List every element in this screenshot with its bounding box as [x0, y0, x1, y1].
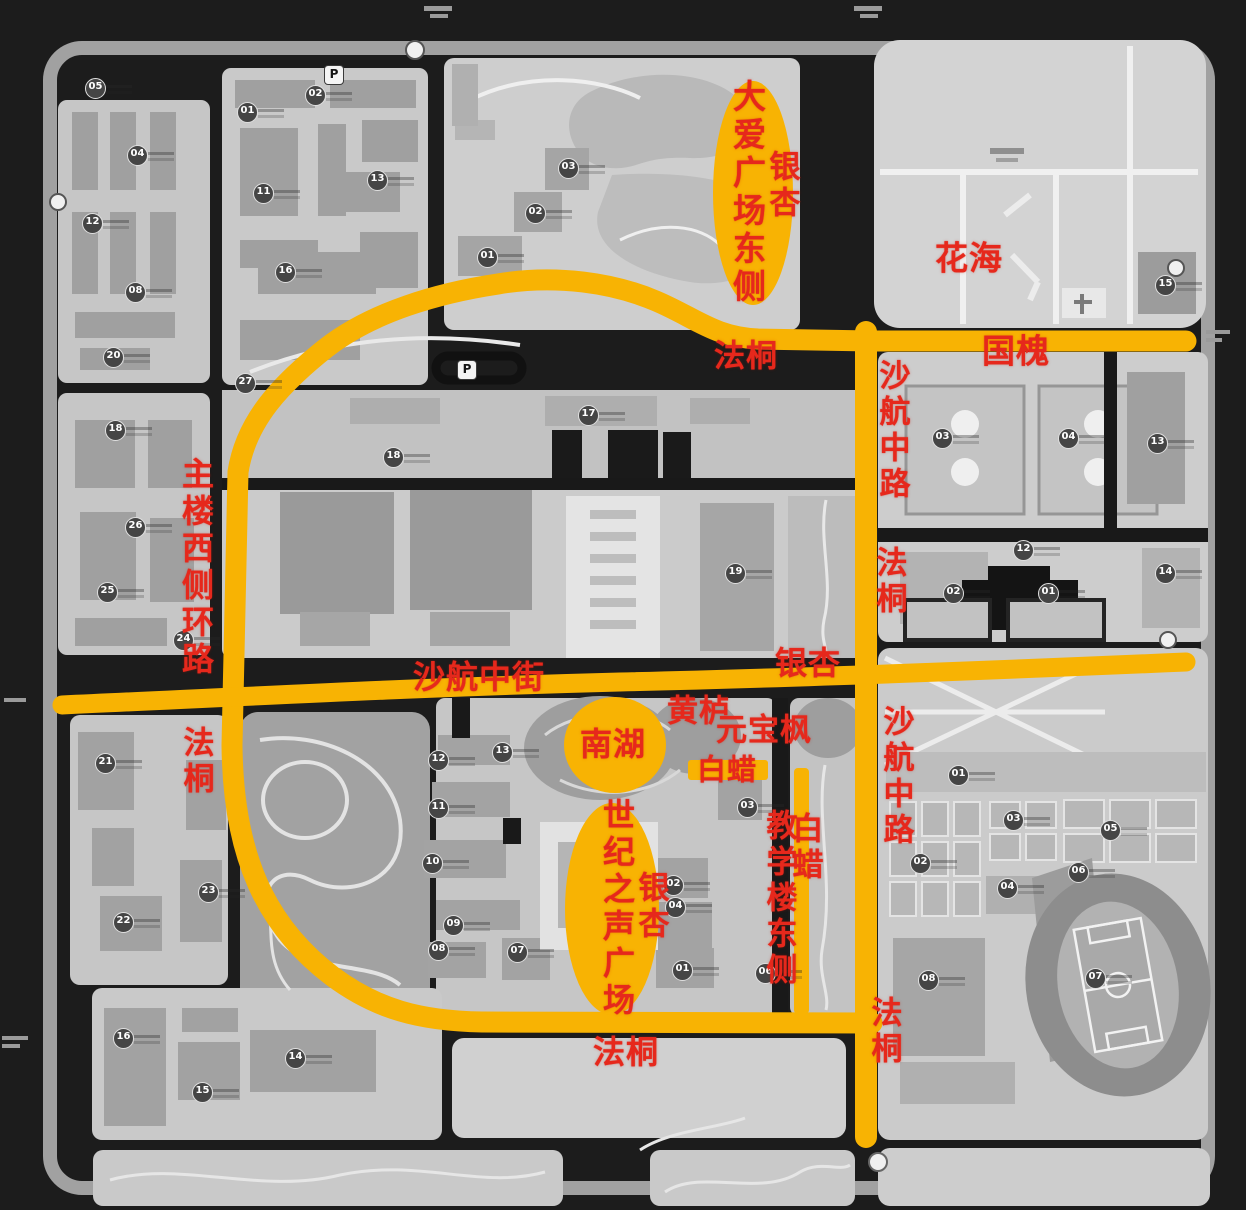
building-marker-02: 02 [910, 853, 931, 874]
building-marker-04: 04 [1058, 428, 1079, 449]
building-marker-02: 02 [943, 583, 964, 604]
building-marker-03: 03 [558, 158, 579, 179]
label-plane-tree-right-lower: 法桐 [868, 996, 899, 1068]
building-marker-20: 20 [103, 347, 124, 368]
building-marker-26: 26 [125, 517, 146, 538]
building-marker-02: 02 [525, 203, 546, 224]
building-marker-12: 12 [428, 750, 449, 771]
building-marker-27: 27 [235, 373, 256, 394]
building-marker-08: 08 [918, 970, 939, 991]
label-plane-tree-top: 法桐 [714, 342, 778, 373]
parking-icon: P [324, 65, 344, 85]
label-ginkgo-plaza: 银杏 [635, 871, 666, 943]
label-ginkgo-middle: 银杏 [775, 647, 841, 679]
building-marker-14: 14 [285, 1048, 306, 1069]
building-marker-23: 23 [198, 882, 219, 903]
building-marker-08: 08 [125, 282, 146, 303]
building-marker-01: 01 [672, 960, 693, 981]
building-marker-15: 15 [192, 1082, 213, 1103]
building-marker-09: 09 [443, 915, 464, 936]
building-marker-12: 12 [82, 213, 103, 234]
building-marker-17: 17 [578, 405, 599, 426]
parking-icon: P [457, 360, 477, 380]
label-shantung-maple: 元宝枫 [716, 716, 812, 747]
building-marker-01: 01 [237, 102, 258, 123]
building-marker-18: 18 [383, 447, 404, 468]
label-shahang-road-upper: 沙航中路 [876, 359, 907, 503]
building-marker-01: 01 [1038, 583, 1059, 604]
building-marker-14: 14 [1155, 563, 1176, 584]
building-marker-21: 21 [95, 753, 116, 774]
label-shahang-road-lower: 沙航中路 [880, 705, 911, 849]
building-marker-05: 05 [1100, 820, 1121, 841]
building-marker-18: 18 [105, 420, 126, 441]
building-marker-01: 01 [948, 765, 969, 786]
building-marker-13: 13 [367, 170, 388, 191]
building-marker-06: 06 [1068, 862, 1089, 883]
label-ash-tree-horizontal: 白蜡 [697, 756, 757, 785]
building-marker-03: 03 [1003, 810, 1024, 831]
label-plane-tree-bottom: 法桐 [593, 1036, 659, 1068]
building-marker-15: 15 [1155, 275, 1176, 296]
label-main-building-west-ring: 主楼西侧环路 [180, 457, 212, 679]
label-flower-sea: 花海 [935, 242, 1003, 275]
building-marker-01: 01 [477, 247, 498, 268]
label-plane-tree-right-upper: 法桐 [873, 546, 904, 618]
label-pagoda-tree: 国槐 [982, 335, 1050, 368]
building-marker-03: 03 [737, 797, 758, 818]
building-marker-10: 10 [422, 853, 443, 874]
label-south-lake: 南湖 [580, 728, 646, 760]
building-marker-04: 04 [127, 145, 148, 166]
building-marker-05: 05 [85, 78, 106, 99]
building-marker-07: 07 [1085, 968, 1106, 989]
label-ash-tree-vertical: 白蜡 [789, 812, 820, 884]
building-marker-13: 13 [1147, 433, 1168, 454]
building-marker-02: 02 [305, 85, 326, 106]
building-marker-19: 19 [725, 563, 746, 584]
label-shahang-middle-street: 沙航中街 [413, 661, 545, 693]
building-marker-04: 04 [997, 878, 1018, 899]
building-marker-16: 16 [113, 1028, 134, 1049]
label-plane-tree-left: 法桐 [180, 726, 211, 798]
building-marker-22: 22 [113, 912, 134, 933]
campus-map: 0502010413111216082003020115271718181903… [0, 0, 1246, 1210]
building-marker-13: 13 [492, 742, 513, 763]
label-daai-square-east: 大爱广场东侧 [731, 79, 764, 307]
building-marker-08: 08 [428, 940, 449, 961]
building-marker-03: 03 [932, 428, 953, 449]
building-marker-25: 25 [97, 582, 118, 603]
building-marker-16: 16 [275, 262, 296, 283]
building-marker-11: 11 [253, 183, 274, 204]
building-marker-07: 07 [507, 942, 528, 963]
label-century-voice-plaza: 世纪之声广场 [601, 798, 633, 1020]
building-marker-12: 12 [1013, 540, 1034, 561]
building-marker-11: 11 [428, 798, 449, 819]
label-ginkgo-top: 银杏 [766, 150, 797, 222]
